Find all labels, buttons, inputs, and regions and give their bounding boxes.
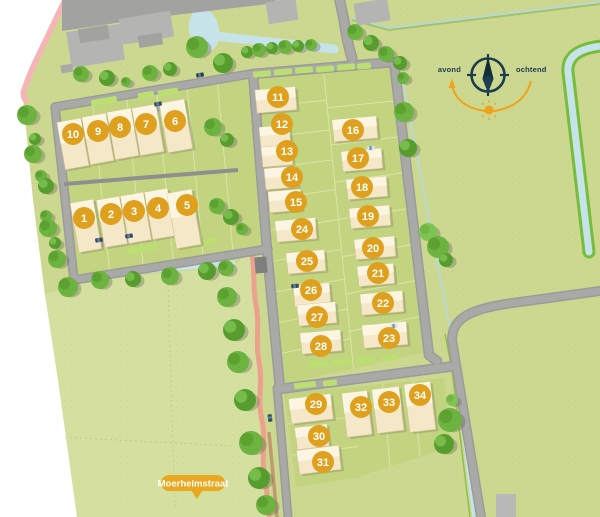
lot-number: 8 <box>117 122 123 134</box>
street-label-text: Moerheimstraat <box>158 479 230 490</box>
lot-marker-12[interactable]: 12 <box>271 113 293 135</box>
lot-number: 18 <box>356 182 368 194</box>
lot-marker-28[interactable]: 28 <box>310 335 332 357</box>
lot-marker-16[interactable]: 16 <box>342 119 364 141</box>
lot-marker-26[interactable]: 26 <box>300 279 322 301</box>
site-plan-map: avond ochtend Moerheimstraat 12345678910… <box>0 0 600 517</box>
lot-number: 1 <box>81 213 87 225</box>
lot-marker-25[interactable]: 25 <box>296 250 318 272</box>
lot-number: 24 <box>296 224 309 236</box>
lot-number: 32 <box>355 402 367 414</box>
lot-number: 26 <box>305 285 317 297</box>
car <box>367 146 375 151</box>
lot-number: 16 <box>347 125 359 137</box>
lot-marker-24[interactable]: 24 <box>291 218 313 240</box>
lot-marker-4[interactable]: 4 <box>147 197 169 219</box>
hedge <box>357 62 371 69</box>
site-plan-page: avond ochtend Moerheimstraat 12345678910… <box>0 0 600 517</box>
lot-marker-29[interactable]: 29 <box>305 393 327 415</box>
lot-number: 19 <box>362 211 374 223</box>
lot-marker-6[interactable]: 6 <box>164 110 186 132</box>
lot-number: 34 <box>414 390 427 402</box>
lot-marker-31[interactable]: 31 <box>312 451 334 473</box>
lot-marker-30[interactable]: 30 <box>308 425 330 447</box>
lot-marker-33[interactable]: 33 <box>378 391 400 413</box>
lot-marker-34[interactable]: 34 <box>409 384 431 406</box>
lot-number: 11 <box>272 92 284 104</box>
lot-number: 7 <box>143 119 149 131</box>
lot-number: 14 <box>286 172 299 184</box>
lot-marker-10[interactable]: 10 <box>62 123 84 145</box>
lot-number: 25 <box>301 256 313 268</box>
car <box>291 284 299 289</box>
lot-number: 28 <box>315 341 327 353</box>
lot-marker-3[interactable]: 3 <box>123 200 145 222</box>
lot-marker-21[interactable]: 21 <box>367 262 389 284</box>
lot-marker-32[interactable]: 32 <box>350 396 372 418</box>
lot-marker-23[interactable]: 23 <box>378 327 400 349</box>
lot-number: 30 <box>313 431 325 443</box>
lot-marker-15[interactable]: 15 <box>285 191 307 213</box>
lot-marker-18[interactable]: 18 <box>351 176 373 198</box>
lot-marker-5[interactable]: 5 <box>176 194 198 216</box>
lot-number: 17 <box>352 153 364 165</box>
lot-marker-13[interactable]: 13 <box>276 140 298 162</box>
lot-number: 33 <box>383 397 395 409</box>
lot-number: 10 <box>67 129 79 141</box>
lot-marker-20[interactable]: 20 <box>362 237 384 259</box>
lot-marker-7[interactable]: 7 <box>135 113 157 135</box>
lot-marker-22[interactable]: 22 <box>372 292 394 314</box>
lot-marker-17[interactable]: 17 <box>347 147 369 169</box>
lot-marker-9[interactable]: 9 <box>87 120 109 142</box>
lot-number: 23 <box>383 333 395 345</box>
compass-west-label: avond <box>438 65 461 74</box>
lot-number: 21 <box>372 268 384 280</box>
lot-number: 12 <box>276 119 288 131</box>
lot-marker-14[interactable]: 14 <box>281 166 303 188</box>
lot-marker-8[interactable]: 8 <box>109 116 131 138</box>
lot-number: 9 <box>95 126 101 138</box>
compass-east-label: ochtend <box>516 65 547 74</box>
lot-number: 6 <box>172 116 178 128</box>
lot-marker-1[interactable]: 1 <box>73 207 95 229</box>
lot-marker-11[interactable]: 11 <box>267 86 289 108</box>
lot-number: 3 <box>131 206 137 218</box>
lot-marker-27[interactable]: 27 <box>306 306 328 328</box>
lot-number: 13 <box>281 146 293 158</box>
hedge <box>382 354 398 361</box>
lot-number: 27 <box>311 312 323 324</box>
lot-number: 31 <box>317 457 329 469</box>
lot-marker-2[interactable]: 2 <box>100 203 122 225</box>
lot-number: 4 <box>155 203 162 215</box>
lot-number: 15 <box>290 197 302 209</box>
lot-number: 5 <box>184 200 190 212</box>
lot-marker-19[interactable]: 19 <box>357 205 379 227</box>
lot-number: 22 <box>377 298 389 310</box>
lot-number: 2 <box>108 209 114 221</box>
lot-number: 29 <box>310 399 322 411</box>
lot-number: 20 <box>367 243 379 255</box>
